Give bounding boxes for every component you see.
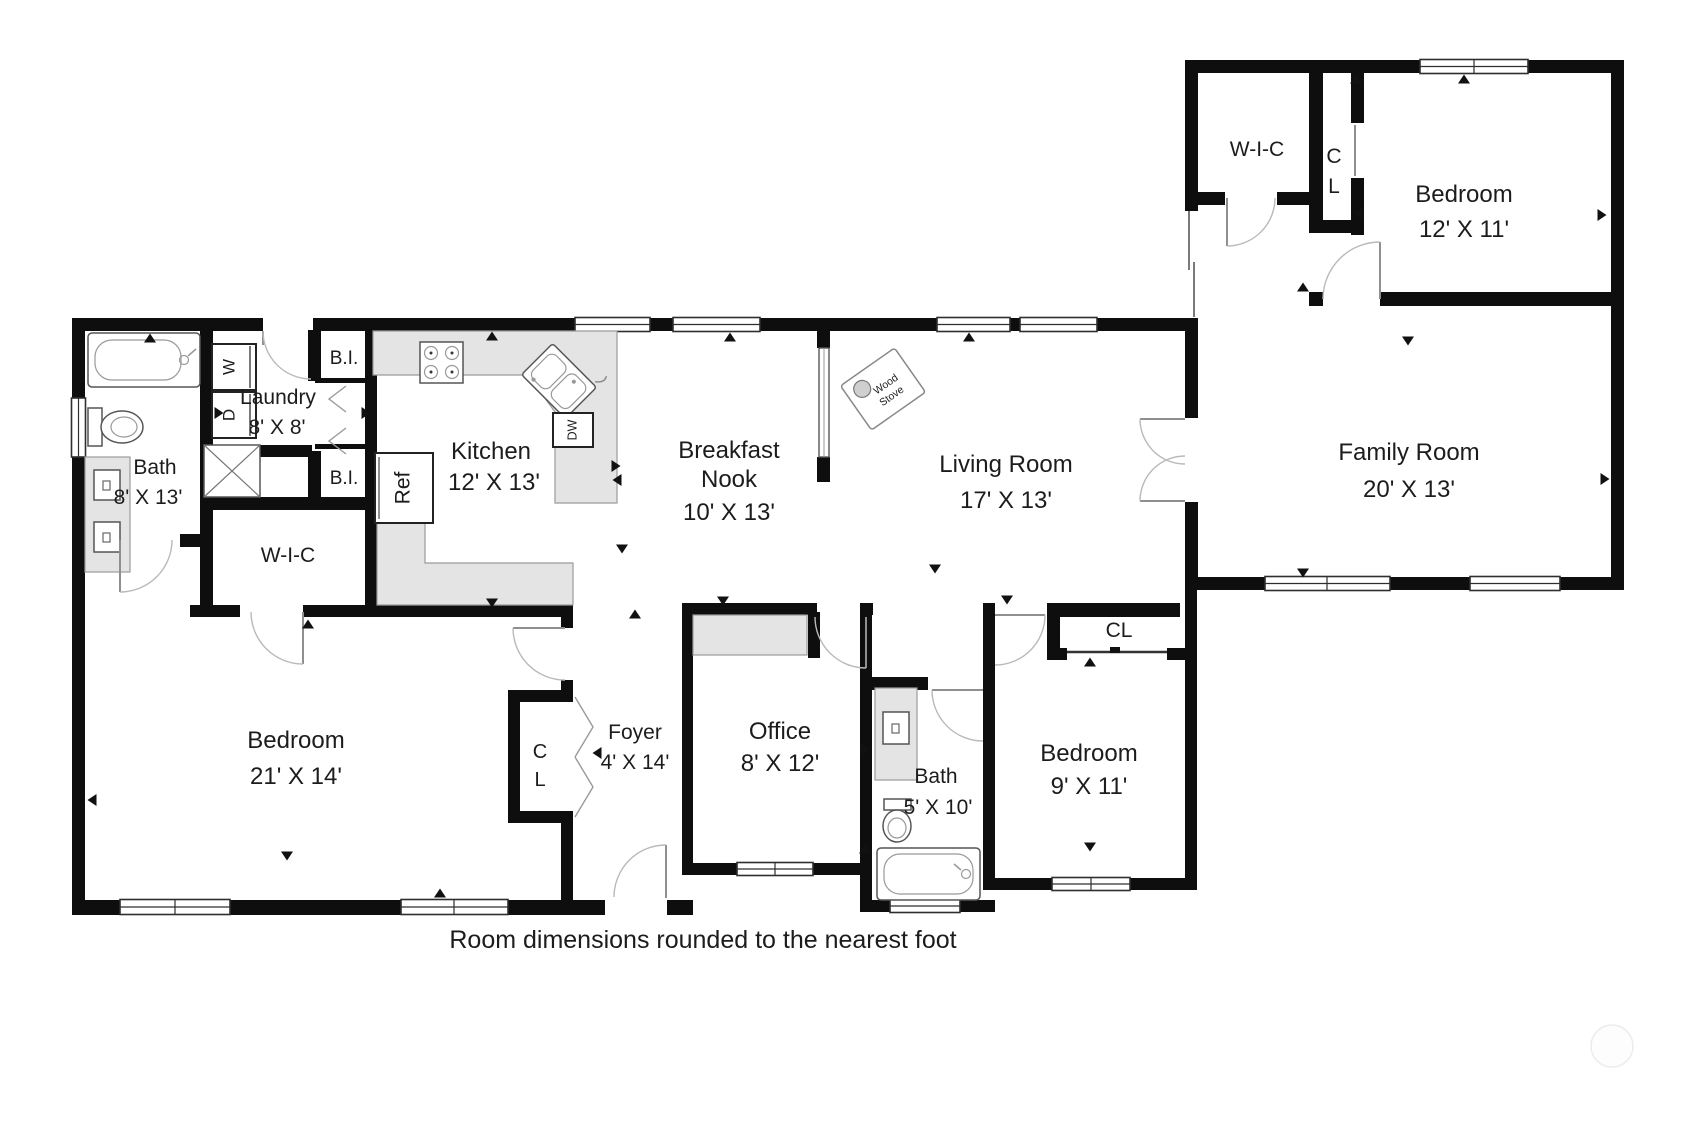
room-label-bi-upper: B.I. xyxy=(330,348,359,369)
door-master-bedroom xyxy=(513,628,565,680)
room-label-nook-1: Breakfast xyxy=(678,437,780,464)
room-label-wic-wing: W-I-C xyxy=(1230,138,1284,161)
room-label-bedroom-wing: Bedroom xyxy=(1415,181,1512,208)
refrigerator-label: Ref xyxy=(392,471,415,504)
room-label-wic-main: W-I-C xyxy=(261,544,315,567)
room-dims-bedroom-master: 21' X 14' xyxy=(250,763,342,790)
window xyxy=(120,900,230,915)
bifold-foyer-cl-1 xyxy=(575,697,593,757)
room-dims-bath-small: 5' X 10' xyxy=(904,796,973,819)
room-label-bath-main: Bath xyxy=(133,456,176,479)
washer: W xyxy=(212,344,256,390)
arrow-right-icon xyxy=(1601,473,1610,485)
office-builtin xyxy=(693,615,807,655)
room-dims-nook: 10' X 13' xyxy=(683,499,775,526)
window xyxy=(673,318,760,332)
bifold-bi-upper xyxy=(329,386,346,412)
dishwasher-label: DW xyxy=(565,419,579,440)
arrow-up-icon xyxy=(629,610,641,619)
door-small-bedroom xyxy=(995,615,1045,665)
kitchen-counter-l xyxy=(377,523,573,605)
arrow-down-icon xyxy=(929,565,941,574)
room-dims-living-room: 17' X 13' xyxy=(960,487,1052,514)
room-label-cl-foyer-c: C xyxy=(533,741,547,763)
room-label-bi-lower: B.I. xyxy=(330,468,359,489)
room-label-cl-wing-c: C xyxy=(1326,145,1341,168)
room-label-bath-small: Bath xyxy=(914,765,957,788)
door-family-double-bottom xyxy=(1140,456,1185,501)
window xyxy=(575,318,650,332)
window xyxy=(1265,577,1390,591)
arrow-up-icon xyxy=(724,333,736,342)
arrow-down-icon xyxy=(281,852,293,861)
door-wing-wic xyxy=(1227,198,1275,246)
arrow-left-icon xyxy=(88,794,97,806)
sliding-door xyxy=(1186,211,1197,317)
dryer-label: D xyxy=(219,409,238,421)
bathtub-small xyxy=(877,848,980,900)
arrow-up-icon xyxy=(434,889,446,898)
watermark-circle xyxy=(1591,1025,1633,1067)
arrow-down-icon xyxy=(616,545,628,554)
arrow-up-icon xyxy=(1084,658,1096,667)
window xyxy=(1020,318,1097,332)
toilet xyxy=(88,408,143,446)
room-label-cl-small: CL xyxy=(1106,619,1133,642)
room-dims-laundry: 8' X 8' xyxy=(248,416,305,439)
room-dims-kitchen: 12' X 13' xyxy=(448,469,540,496)
room-label-family-room: Family Room xyxy=(1338,439,1479,466)
window xyxy=(1420,60,1528,74)
arrow-right-icon xyxy=(1598,209,1607,221)
door-wing-bedroom xyxy=(1323,242,1380,299)
bathtub xyxy=(88,333,200,387)
room-labels: W-I-C C L Bedroom 12' X 11' Family Room … xyxy=(114,138,1513,819)
door-small-bath xyxy=(932,690,983,741)
window xyxy=(890,900,960,913)
door-front-entry xyxy=(614,845,666,898)
arrow-up-icon xyxy=(1297,283,1309,292)
window xyxy=(72,398,86,457)
door-laundry-exterior xyxy=(263,331,311,379)
room-label-nook-2: Nook xyxy=(701,466,758,493)
dishwasher: DW xyxy=(553,413,593,447)
room-label-kitchen: Kitchen xyxy=(451,438,531,465)
refrigerator: Ref xyxy=(375,453,433,523)
room-label-laundry: Laundry xyxy=(240,386,316,409)
shower xyxy=(204,445,260,497)
door-wic-main xyxy=(251,612,303,664)
room-label-bedroom-master: Bedroom xyxy=(247,727,344,754)
wood-stove: Wood Stove xyxy=(840,348,925,430)
door-office xyxy=(815,617,866,668)
window xyxy=(937,318,1010,332)
stove xyxy=(420,342,463,383)
room-dims-bedroom-wing: 12' X 11' xyxy=(1419,216,1509,243)
room-dims-family-room: 20' X 13' xyxy=(1363,476,1455,503)
room-dims-foyer: 4' X 14' xyxy=(601,751,670,774)
room-dims-bath-main: 8' X 13' xyxy=(114,486,183,509)
arrow-up-icon xyxy=(963,333,975,342)
room-label-cl-foyer-l: L xyxy=(534,769,545,791)
room-label-foyer: Foyer xyxy=(608,721,662,744)
window xyxy=(401,900,508,915)
arrow-down-icon xyxy=(1001,596,1013,605)
room-label-office: Office xyxy=(749,718,811,745)
floor-plan-page: W D Ref xyxy=(0,0,1693,1133)
bifold-foyer-cl-2 xyxy=(575,757,593,817)
room-dims-office: 8' X 12' xyxy=(741,750,820,777)
window xyxy=(1470,577,1560,591)
caption: Room dimensions rounded to the nearest f… xyxy=(449,926,956,954)
arrow-down-icon xyxy=(1402,337,1414,346)
window xyxy=(1052,878,1130,891)
room-label-living-room: Living Room xyxy=(939,451,1072,478)
arrow-up-icon xyxy=(1458,75,1470,84)
floor-plan: W D Ref xyxy=(0,0,1693,1133)
washer-label: W xyxy=(219,359,238,375)
bifold-bi-lower xyxy=(329,428,346,454)
door-family-double-top xyxy=(1140,419,1185,464)
room-dims-bedroom-small: 9' X 11' xyxy=(1051,773,1128,800)
room-label-bedroom-small: Bedroom xyxy=(1040,740,1137,767)
room-label-cl-wing-l: L xyxy=(1328,175,1340,198)
arrow-down-icon xyxy=(1084,843,1096,852)
window xyxy=(737,863,813,876)
